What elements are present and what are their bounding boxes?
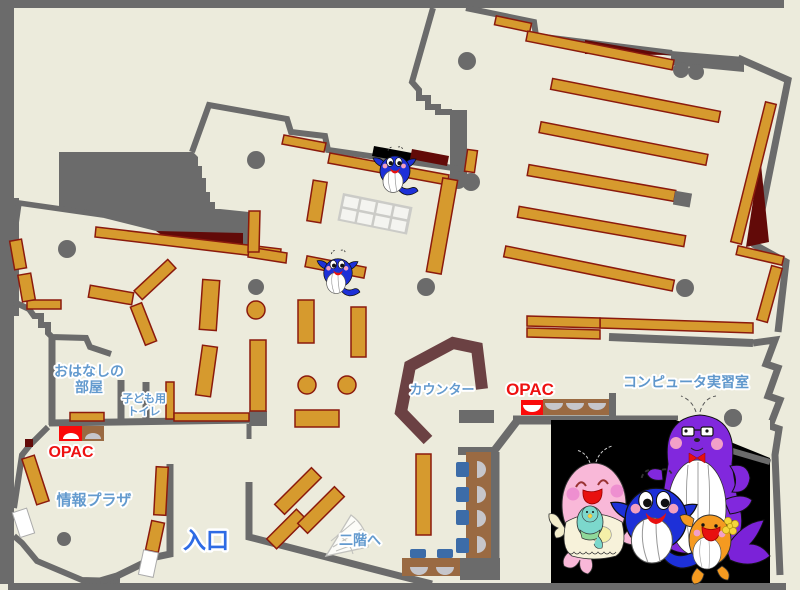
svg-text:カウンター: カウンター	[409, 382, 474, 397]
svg-text:おはなしの: おはなしの	[54, 363, 124, 379]
svg-text:子ども用: 子ども用	[122, 392, 166, 405]
svg-text:OPAC: OPAC	[48, 444, 93, 461]
svg-text:入口: 入口	[183, 527, 229, 553]
svg-text:トイレ: トイレ	[128, 405, 161, 418]
svg-text:OPAC: OPAC	[506, 380, 554, 399]
svg-text:コンピュータ実習室: コンピュータ実習室	[623, 374, 749, 390]
svg-text:情報プラザ: 情報プラザ	[56, 491, 131, 509]
svg-text:二階へ: 二階へ	[339, 532, 381, 548]
svg-text:部屋: 部屋	[75, 379, 103, 395]
